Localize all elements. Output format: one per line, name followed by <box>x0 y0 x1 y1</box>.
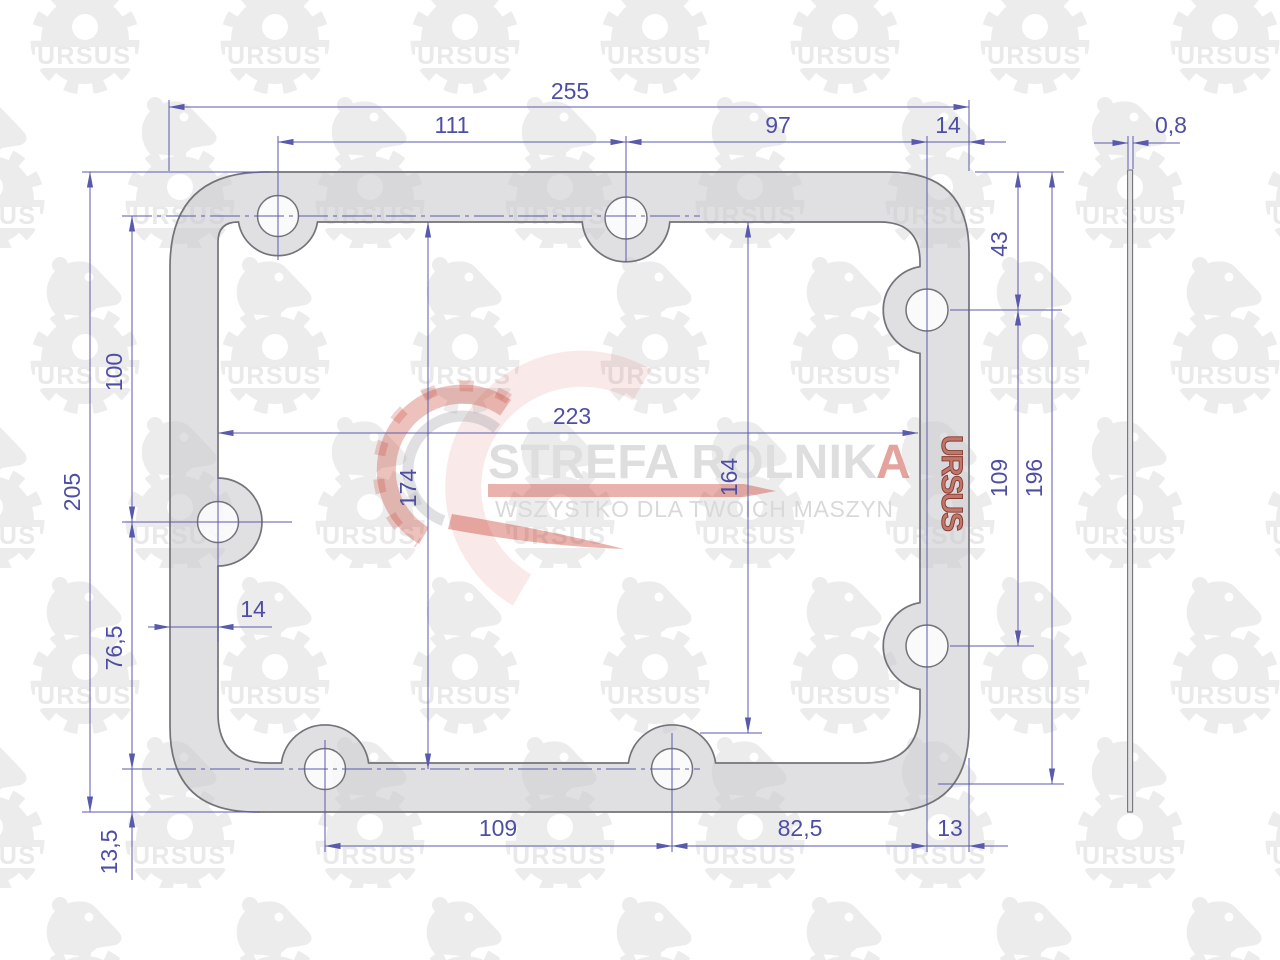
dim-inner-width-label: 223 <box>553 403 591 429</box>
dim-top-left-span-label: 111 <box>435 112 470 138</box>
logo-tagline: WSZYSTKO DLA TWOICH MASZYN <box>495 496 895 522</box>
side-view-strip <box>1128 170 1133 812</box>
dim-left-lower-span-label: 76,5 <box>101 626 127 671</box>
dim-bottom-corner-offset-label: 13,5 <box>96 830 122 875</box>
gasket-side-view <box>1128 170 1133 812</box>
dim-bottom-right-edge-label: 13 <box>937 815 963 841</box>
dim-inner-height-left-label: 174 <box>395 469 421 508</box>
dim-top-right-span-label: 97 <box>765 112 791 138</box>
logo-title: STREFA ROLNIK <box>488 436 880 489</box>
dim-overall-height-label: 205 <box>59 473 85 511</box>
dim-thickness-label: 0,8 <box>1155 112 1187 138</box>
gasket-drawing-canvas: URSUS STREFA ROLNIK A WSZYSTKO DLA TWOIC… <box>0 0 1280 960</box>
dim-top-right-edge-label: 14 <box>935 112 961 138</box>
dim-inner-height-right-label: 164 <box>716 458 742 497</box>
dim-right-holes-span-label: 109 <box>986 459 1012 497</box>
dim-left-upper-span-label: 100 <box>101 353 127 391</box>
logo-title-accent: A <box>876 436 911 489</box>
dim-right-top-offset-label: 43 <box>986 231 1012 257</box>
dim-overall-width-label: 255 <box>551 78 589 104</box>
dim-left-hole-offset-label: 14 <box>240 596 266 622</box>
technical-drawing-page: URSUS STREFA ROLNIK A WSZYSTKO DLA TWOIC… <box>0 0 1280 960</box>
ursus-brand-mark: URSUS <box>935 435 968 535</box>
dim-right-height-label: 196 <box>1021 459 1047 497</box>
dim-bottom-left-span-label: 109 <box>479 815 517 841</box>
dim-bottom-right-span-label: 82,5 <box>778 815 823 841</box>
